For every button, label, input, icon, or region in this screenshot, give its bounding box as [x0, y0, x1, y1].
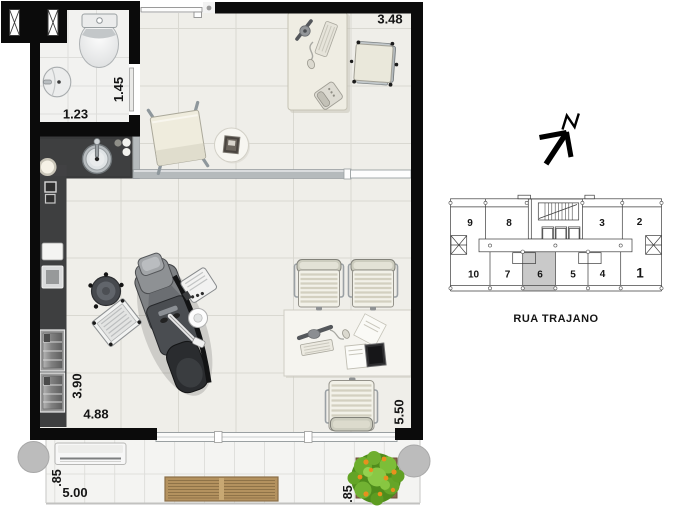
svg-text:4.88: 4.88 [83, 407, 108, 422]
svg-text:3.48: 3.48 [377, 12, 402, 27]
svg-text:5.00: 5.00 [62, 485, 87, 500]
svg-text:9: 9 [467, 218, 473, 229]
svg-text:1: 1 [636, 266, 644, 281]
svg-text:1.23: 1.23 [63, 107, 88, 122]
svg-text:RUA TRAJANO: RUA TRAJANO [513, 313, 598, 325]
svg-text:4: 4 [600, 269, 606, 280]
svg-text:1.45: 1.45 [111, 77, 126, 102]
svg-text:5.50: 5.50 [392, 399, 407, 424]
svg-text:6: 6 [537, 270, 543, 281]
svg-text:10: 10 [468, 270, 480, 281]
svg-text:7: 7 [505, 270, 511, 281]
svg-text:5: 5 [570, 270, 576, 281]
svg-text:2: 2 [637, 217, 643, 228]
svg-text:.85: .85 [341, 485, 355, 502]
svg-text:3.90: 3.90 [70, 373, 85, 398]
svg-text:3: 3 [599, 218, 605, 229]
svg-text:8: 8 [506, 218, 512, 229]
